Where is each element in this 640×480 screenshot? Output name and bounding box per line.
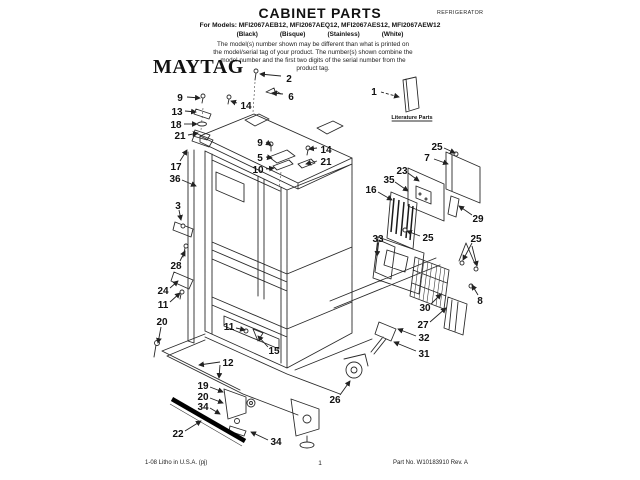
callout-leader (258, 336, 268, 347)
callout-number: 11 (158, 300, 169, 311)
callout-number: 7 (424, 153, 430, 164)
callout-leader (187, 97, 200, 98)
callout-leader (185, 111, 196, 112)
footer-part-number: Part No. W10183910 Rev. A (393, 460, 468, 466)
callout-number: 30 (419, 303, 431, 314)
callout-number: 34 (197, 402, 209, 413)
callout-number: 11 (224, 322, 235, 333)
callout-number: 32 (418, 333, 430, 344)
callout-leader (210, 398, 223, 403)
callout-number: 5 (257, 153, 263, 164)
callout-leader (170, 293, 180, 302)
callout-leader (219, 365, 220, 378)
callout-leader (395, 182, 408, 191)
callout-leader (236, 328, 245, 330)
callout-number: 35 (383, 175, 395, 186)
callout-leader (381, 92, 399, 97)
callout-leader (199, 362, 220, 365)
callout-number: 29 (472, 214, 484, 225)
callout-leader (306, 161, 317, 164)
callout-number: 16 (365, 185, 377, 196)
callout-leader (407, 231, 420, 236)
callout-leader (340, 381, 350, 395)
callout-number: 17 (170, 162, 182, 173)
callout-number: 26 (329, 395, 341, 406)
callout-number: 1 (371, 87, 377, 98)
callout-number: 21 (320, 157, 332, 168)
callout-number: 33 (372, 234, 384, 245)
callout-number: 3 (175, 201, 181, 212)
callout-number: 13 (171, 107, 183, 118)
callout-number: 12 (222, 358, 234, 369)
callout-number: 14 (240, 101, 252, 112)
parts-diagram: Literature Parts 26149131821173695101421… (0, 0, 640, 480)
callout-leader (210, 408, 220, 414)
callout-leader (472, 285, 478, 295)
callout-leader (158, 327, 161, 343)
callout-number: 18 (170, 120, 182, 131)
callout-leader (266, 157, 272, 158)
callout-leader (251, 432, 268, 440)
callout-number: 25 (470, 234, 482, 245)
callout-leader (231, 101, 237, 103)
callout-number: 25 (431, 142, 443, 153)
catalog-page: CABINET PARTS REFRIGERATOR For Models: M… (0, 0, 640, 480)
callout-leader (378, 192, 392, 200)
callout-leader (459, 206, 472, 215)
callout-number: 14 (320, 145, 332, 156)
callout-leader (210, 387, 223, 392)
callout-number: 19 (197, 381, 209, 392)
callout-number: 23 (396, 166, 408, 177)
callout-number: 6 (288, 92, 294, 103)
callout-leader (180, 251, 185, 261)
callout-leader (185, 421, 201, 431)
callout-number: 20 (156, 317, 168, 328)
callout-number: 9 (177, 93, 183, 104)
callout-number: 9 (257, 138, 263, 149)
callout-number: 36 (169, 174, 181, 185)
callout-number: 24 (157, 286, 169, 297)
callout-number: 21 (174, 131, 186, 142)
callout-leader (408, 173, 419, 181)
callout-number: 8 (477, 296, 483, 307)
callout-number: 34 (270, 437, 282, 448)
callout-leader (260, 74, 281, 76)
callout-number: 28 (170, 261, 182, 272)
callout-number: 22 (172, 429, 184, 440)
callout-leader (180, 150, 187, 161)
callout-leader (394, 342, 416, 351)
callout-leader (430, 308, 446, 322)
callout-number: 10 (252, 165, 264, 176)
callout-number: 27 (417, 320, 429, 331)
callout-number: 25 (422, 233, 434, 244)
footer-page-number: 1 (0, 460, 640, 467)
callout-number: 15 (268, 346, 280, 357)
callout-leader (398, 329, 416, 336)
callout-number: 2 (286, 74, 292, 85)
callout-number: 31 (418, 349, 430, 360)
literature-parts-label: Literature Parts (391, 115, 432, 121)
